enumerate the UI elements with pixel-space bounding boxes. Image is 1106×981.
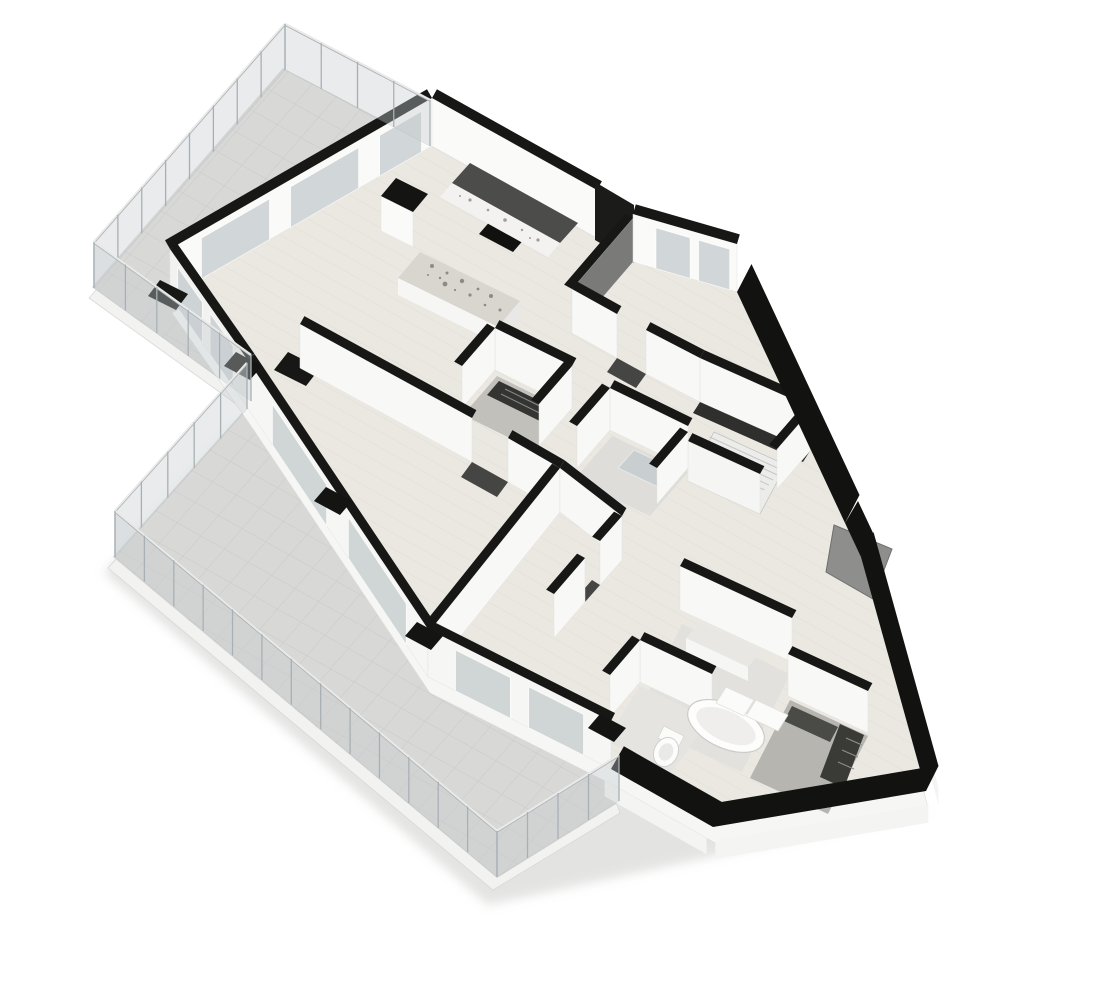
kitchen-island-speckle-10 (499, 309, 502, 312)
kitchen-counter-speckle-6 (529, 237, 531, 239)
kitchen-island-speckle-9 (427, 274, 429, 276)
floor-plan-render (0, 0, 1106, 981)
kitchen-island-speckle-2 (460, 279, 464, 283)
scene-root (89, 24, 939, 905)
kitchen-island-speckle-8 (484, 304, 487, 307)
kitchen-island-speckle-7 (454, 289, 456, 291)
kitchen-island-speckle-6 (468, 293, 471, 296)
screenshot-canvas (0, 0, 1106, 981)
kitchen-island-speckle-0 (430, 264, 434, 268)
kitchen-island-speckle-3 (477, 288, 480, 291)
kitchen-island-speckle-4 (489, 294, 493, 298)
kitchen-island-speckle-11 (443, 282, 448, 287)
wall-northeast-bedroom-window-1 (699, 240, 730, 290)
kitchen-counter-speckle-2 (503, 218, 507, 222)
kitchen-island-speckle-1 (446, 272, 449, 275)
kitchen-counter-speckle-1 (487, 209, 490, 212)
kitchen-island-speckle-5 (439, 277, 441, 279)
kitchen-counter-speckle-0 (468, 198, 471, 201)
kitchen-counter-speckle-5 (459, 195, 461, 197)
kitchen-counter-speckle-4 (536, 238, 539, 241)
kitchen-counter-speckle-3 (521, 229, 523, 231)
